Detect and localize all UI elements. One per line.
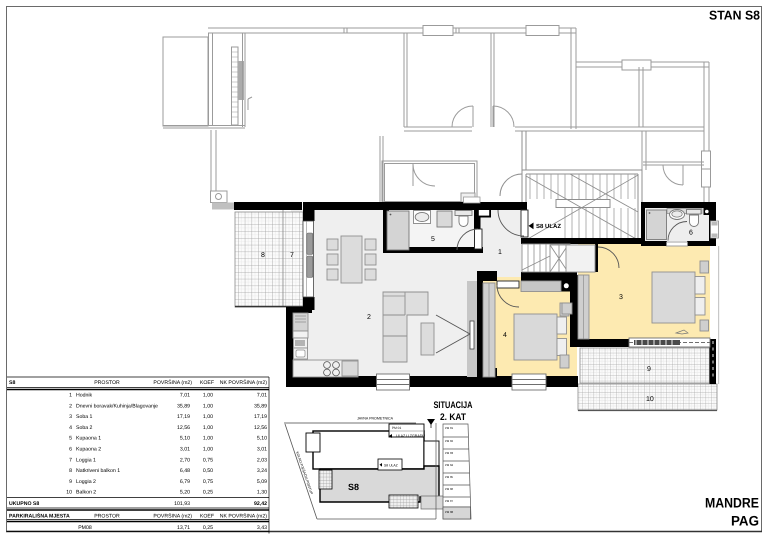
svg-text:5,09: 5,09 <box>257 479 267 485</box>
svg-text:PM 08: PM 08 <box>445 510 454 514</box>
svg-text:ULAZ U ZGRADU: ULAZ U ZGRADU <box>396 434 425 438</box>
svg-text:PM08: PM08 <box>78 525 92 531</box>
svg-text:5: 5 <box>431 236 435 243</box>
svg-text:17,19: 17,19 <box>177 414 190 420</box>
svg-text:1: 1 <box>498 249 502 256</box>
svg-text:NK POVRŠINA (m2): NK POVRŠINA (m2) <box>220 513 268 520</box>
svg-text:2,70: 2,70 <box>180 457 190 463</box>
svg-text:12,56: 12,56 <box>177 425 190 431</box>
svg-text:3,01: 3,01 <box>180 447 190 453</box>
svg-text:PM 05: PM 05 <box>445 475 454 479</box>
svg-text:S8: S8 <box>348 482 359 492</box>
svg-text:17,19: 17,19 <box>254 414 267 420</box>
svg-text:Soba 1: Soba 1 <box>76 414 93 420</box>
svg-text:4: 4 <box>69 425 72 431</box>
svg-text:JAVNA PROMETNICA: JAVNA PROMETNICA <box>357 417 394 421</box>
svg-text:Natkriveni balkon 1: Natkriveni balkon 1 <box>76 468 120 474</box>
svg-text:S8 ULAZ: S8 ULAZ <box>384 464 398 468</box>
svg-text:MANDRE: MANDRE <box>705 496 759 511</box>
svg-text:0,75: 0,75 <box>203 479 213 485</box>
svg-text:9: 9 <box>69 479 72 485</box>
svg-text:5,10: 5,10 <box>180 436 190 442</box>
svg-text:KOEF: KOEF <box>200 380 214 386</box>
svg-text:UKUPNO S8: UKUPNO S8 <box>9 501 39 507</box>
svg-text:Hodnik: Hodnik <box>76 393 93 399</box>
svg-text:Dnevni boravak/Kuhinja/Blagova: Dnevni boravak/Kuhinja/Blagovanje <box>76 403 158 409</box>
svg-text:Loggia 1: Loggia 1 <box>76 457 96 463</box>
svg-text:7: 7 <box>290 252 294 259</box>
svg-text:Soba 2: Soba 2 <box>76 425 93 431</box>
svg-text:PM 04: PM 04 <box>445 463 454 467</box>
svg-text:PM 01: PM 01 <box>392 426 401 430</box>
svg-text:PROSTOR: PROSTOR <box>94 514 120 520</box>
svg-text:S8: S8 <box>9 380 15 386</box>
svg-text:3,24: 3,24 <box>257 468 267 474</box>
svg-text:3,43: 3,43 <box>257 525 267 531</box>
svg-text:POVRŠINA (m2): POVRŠINA (m2) <box>153 379 192 386</box>
svg-text:8: 8 <box>261 252 265 259</box>
svg-text:4: 4 <box>503 332 507 339</box>
svg-text:PM 01: PM 01 <box>445 426 454 430</box>
svg-text:0,25: 0,25 <box>203 525 213 531</box>
svg-text:5: 5 <box>69 436 72 442</box>
svg-text:1,00: 1,00 <box>203 425 213 431</box>
svg-text:5,10: 5,10 <box>257 436 267 442</box>
svg-text:1,00: 1,00 <box>203 436 213 442</box>
svg-text:PM 07: PM 07 <box>445 499 454 503</box>
svg-text:POVRŠINA (m2): POVRŠINA (m2) <box>153 513 192 520</box>
svg-text:2: 2 <box>69 403 72 409</box>
svg-text:1: 1 <box>69 393 72 399</box>
svg-text:1,00: 1,00 <box>203 447 213 453</box>
svg-text:7,01: 7,01 <box>257 393 267 399</box>
svg-text:3: 3 <box>619 294 623 301</box>
svg-text:0,50: 0,50 <box>203 468 213 474</box>
svg-text:6: 6 <box>69 447 72 453</box>
svg-text:KOEF: KOEF <box>200 514 214 520</box>
svg-text:2,03: 2,03 <box>257 457 267 463</box>
svg-text:1,00: 1,00 <box>203 414 213 420</box>
svg-text:1,00: 1,00 <box>203 403 213 409</box>
svg-text:10: 10 <box>646 396 654 403</box>
svg-text:3: 3 <box>69 414 72 420</box>
svg-text:Balkon 2: Balkon 2 <box>76 490 96 496</box>
svg-text:PARKIRALIŠNA MJESTA: PARKIRALIŠNA MJESTA <box>9 513 70 520</box>
svg-text:2. KAT: 2. KAT <box>440 412 466 423</box>
svg-text:92,42: 92,42 <box>254 501 267 507</box>
svg-text:6,48: 6,48 <box>180 468 190 474</box>
svg-text:101,93: 101,93 <box>174 501 190 507</box>
svg-text:PM 02: PM 02 <box>445 439 454 443</box>
svg-text:PROSTOR: PROSTOR <box>94 380 120 386</box>
svg-text:S8 ULAZ: S8 ULAZ <box>536 223 561 230</box>
svg-text:7,01: 7,01 <box>180 393 190 399</box>
svg-text:Kupaona 2: Kupaona 2 <box>76 447 101 453</box>
svg-text:1,00: 1,00 <box>203 393 213 399</box>
svg-text:PAG: PAG <box>731 514 759 529</box>
svg-text:5,20: 5,20 <box>180 490 190 496</box>
svg-text:6,79: 6,79 <box>180 479 190 485</box>
svg-text:2: 2 <box>367 314 371 321</box>
svg-text:6: 6 <box>689 230 693 237</box>
svg-text:1,30: 1,30 <box>257 490 267 496</box>
svg-text:35,89: 35,89 <box>177 403 190 409</box>
svg-text:STAN S8: STAN S8 <box>709 8 760 23</box>
svg-text:10: 10 <box>66 490 72 496</box>
svg-text:PM 03: PM 03 <box>445 451 454 455</box>
svg-text:0,75: 0,75 <box>203 457 213 463</box>
svg-text:SITUACIJA: SITUACIJA <box>434 400 473 411</box>
svg-text:35,89: 35,89 <box>254 403 267 409</box>
svg-text:0,25: 0,25 <box>203 490 213 496</box>
svg-text:NK POVRŠINA (m2): NK POVRŠINA (m2) <box>220 379 268 386</box>
svg-text:Loggia 2: Loggia 2 <box>76 479 96 485</box>
svg-text:Kupaona 1: Kupaona 1 <box>76 436 101 442</box>
svg-text:12,56: 12,56 <box>254 425 267 431</box>
svg-text:8: 8 <box>69 468 72 474</box>
svg-text:7: 7 <box>69 457 72 463</box>
svg-text:9: 9 <box>647 366 651 373</box>
svg-text:PM 06: PM 06 <box>445 487 454 491</box>
svg-text:13,71: 13,71 <box>177 525 190 531</box>
svg-text:3,01: 3,01 <box>257 447 267 453</box>
